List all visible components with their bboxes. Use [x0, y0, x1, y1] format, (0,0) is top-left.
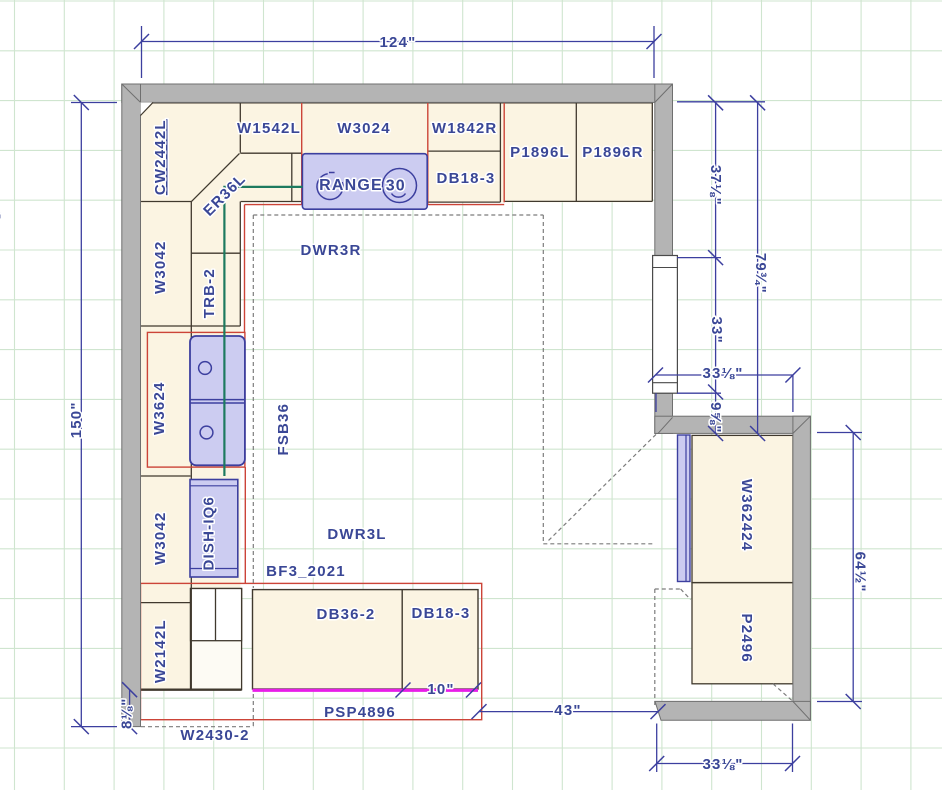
- svg-text:W1542L: W1542L: [237, 120, 301, 137]
- svg-text:9⅝": 9⅝": [707, 402, 724, 434]
- svg-text:33⅛": 33⅛": [702, 756, 743, 773]
- svg-text:W2142L: W2142L: [152, 619, 169, 683]
- svg-text:124": 124": [380, 34, 417, 51]
- svg-text:G: G: [0, 207, 2, 224]
- svg-text:33⅛": 33⅛": [702, 365, 743, 382]
- svg-text:W2430-2: W2430-2: [180, 727, 249, 744]
- svg-text:W3024: W3024: [337, 120, 391, 137]
- svg-text:RANGE: RANGE: [319, 177, 383, 194]
- svg-text:64½": 64½": [852, 552, 869, 593]
- svg-text:CW2442L: CW2442L: [152, 119, 169, 195]
- svg-text:DB18-3: DB18-3: [412, 605, 471, 622]
- svg-text:TRB-2: TRB-2: [201, 268, 218, 318]
- svg-text:P1896L: P1896L: [510, 144, 570, 161]
- svg-text:P2496: P2496: [738, 614, 755, 663]
- svg-text:W1842R: W1842R: [432, 120, 498, 137]
- svg-text:BF3_2021: BF3_2021: [266, 563, 346, 580]
- svg-text:33": 33": [708, 316, 725, 343]
- svg-text:W3624: W3624: [151, 381, 168, 435]
- svg-text:37⅛": 37⅛": [707, 165, 724, 206]
- svg-text:DWR3R: DWR3R: [301, 242, 362, 259]
- svg-text:W3042: W3042: [152, 511, 169, 565]
- svg-text:30: 30: [386, 178, 406, 195]
- svg-text:10": 10": [427, 681, 454, 698]
- svg-text:PSP4896: PSP4896: [324, 704, 396, 721]
- svg-text:W3042: W3042: [152, 240, 169, 294]
- svg-text:150": 150": [68, 401, 85, 438]
- svg-text:DWR3L: DWR3L: [327, 526, 386, 543]
- svg-text:FSB36: FSB36: [275, 403, 292, 456]
- svg-text:8⅛": 8⅛": [119, 697, 136, 729]
- svg-text:DB36-2: DB36-2: [317, 606, 376, 623]
- svg-text:DISH-IQ6: DISH-IQ6: [201, 496, 218, 571]
- svg-text:79¾": 79¾": [752, 253, 769, 294]
- svg-text:43": 43": [554, 702, 581, 719]
- svg-text:P1896R: P1896R: [582, 144, 643, 161]
- svg-text:DB18-3: DB18-3: [437, 170, 496, 187]
- svg-text:W362424: W362424: [738, 479, 755, 552]
